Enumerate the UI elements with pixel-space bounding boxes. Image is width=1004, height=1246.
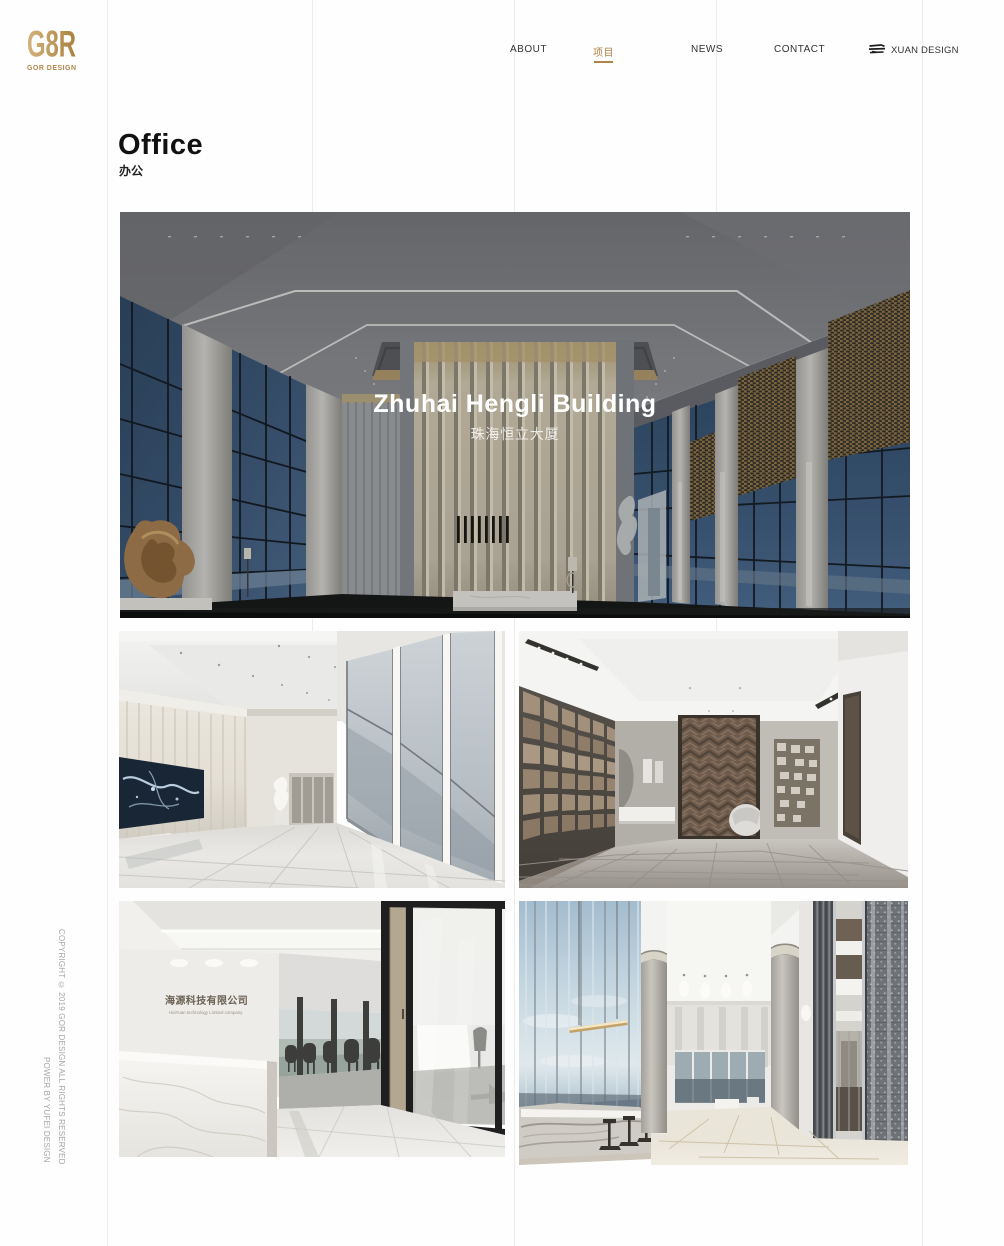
- svg-text:海源科技有限公司: 海源科技有限公司: [165, 994, 248, 1007]
- svg-text:GOR DESIGN: GOR DESIGN: [27, 65, 76, 72]
- svg-text:G8R: G8R: [27, 28, 76, 65]
- svg-text:HaiYuan technology Limited com: HaiYuan technology Limited company: [169, 1010, 243, 1015]
